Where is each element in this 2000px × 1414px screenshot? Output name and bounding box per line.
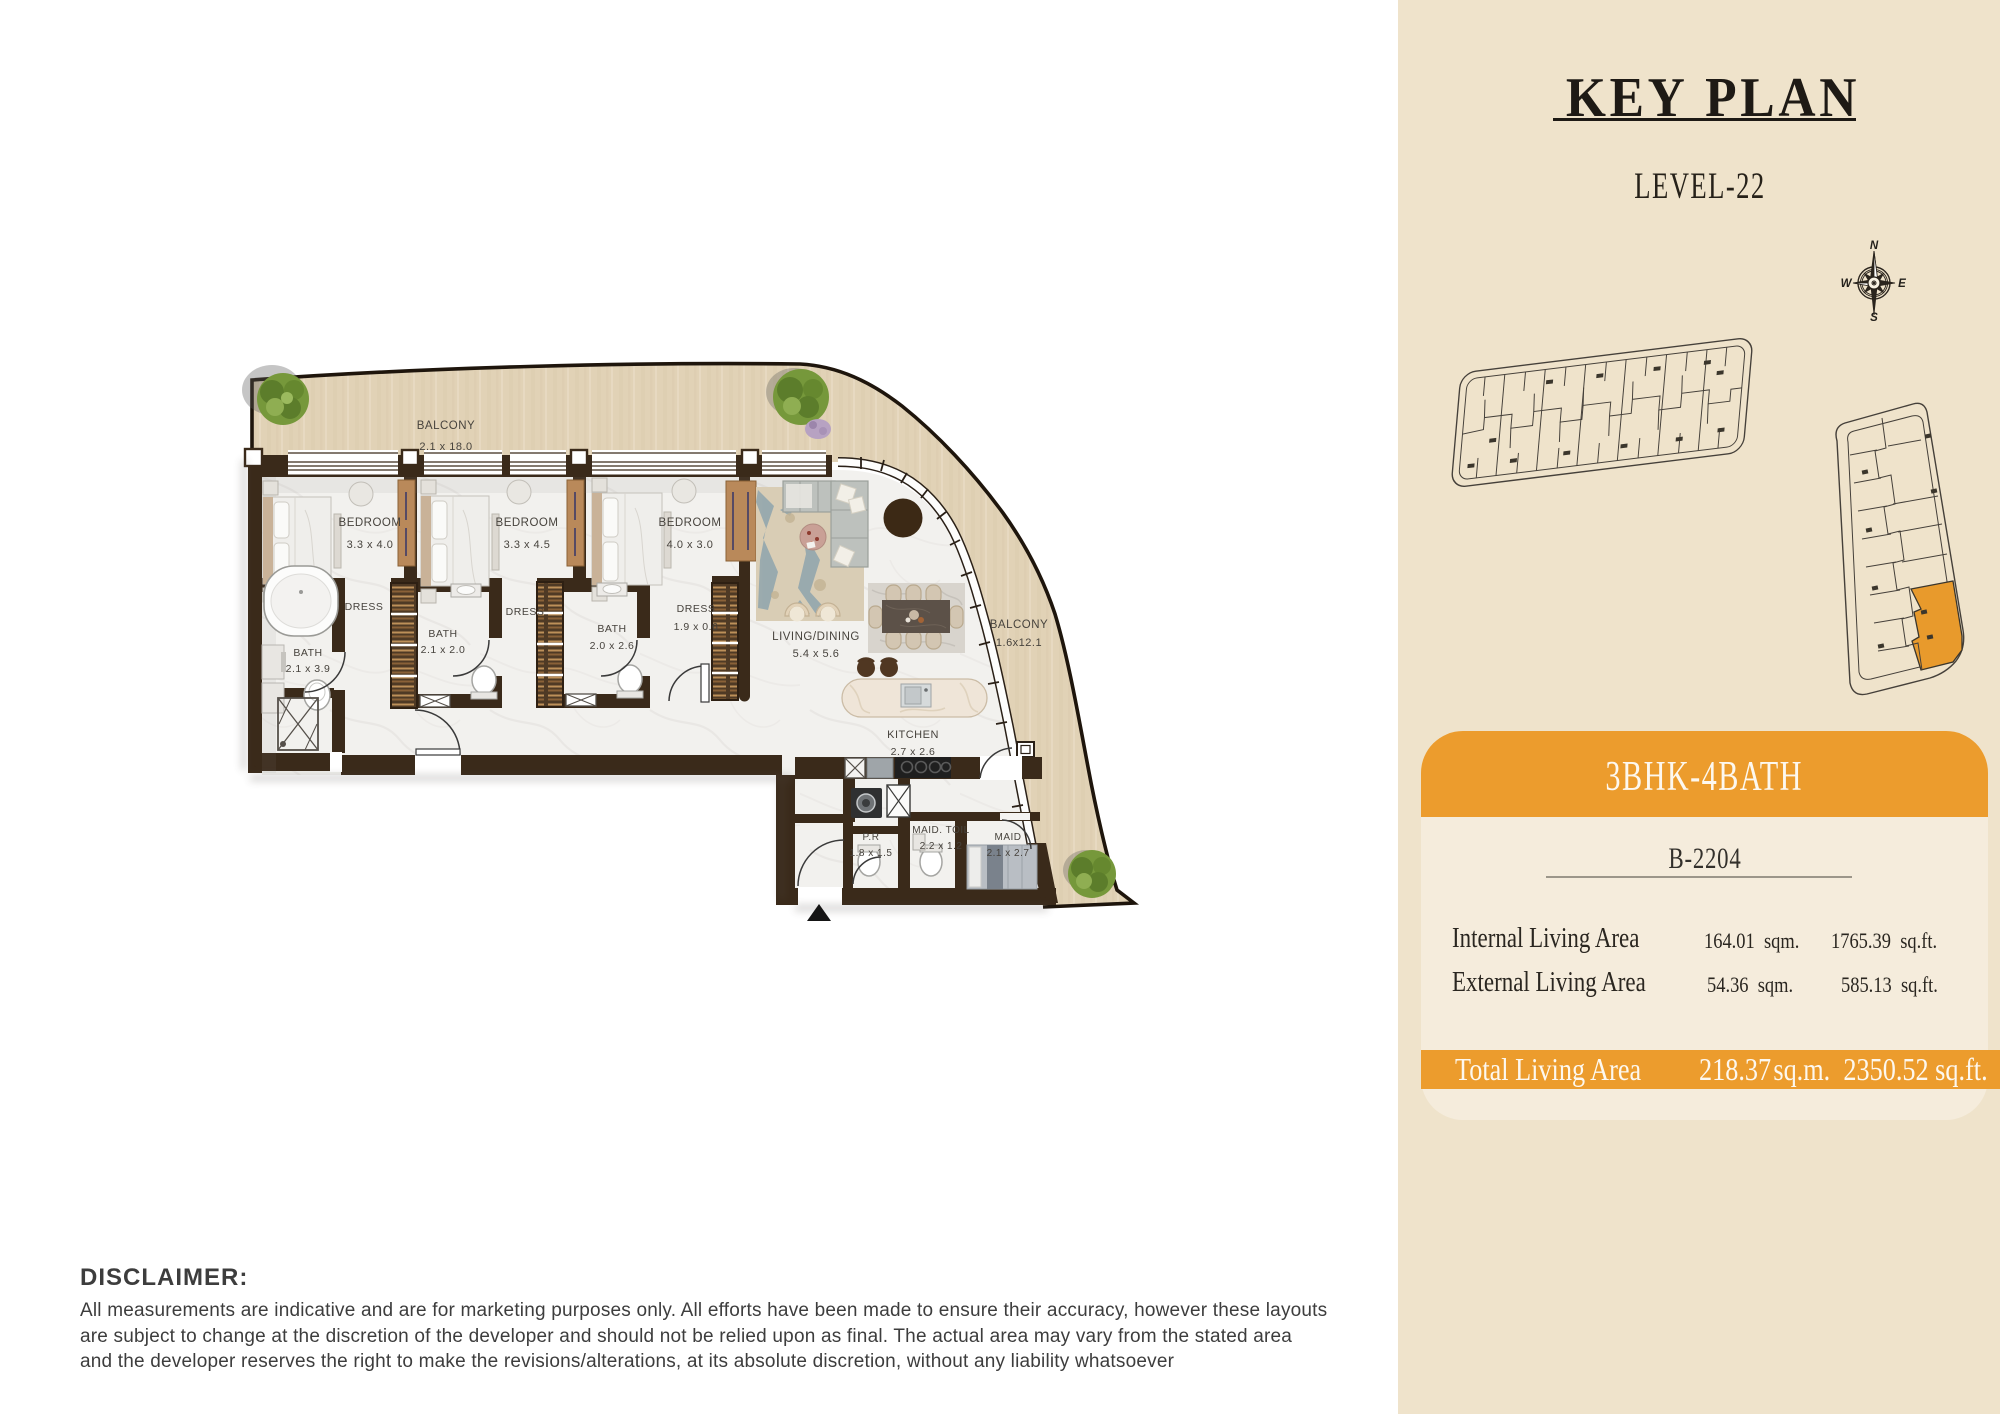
svg-text:MAID. TOIL: MAID. TOIL: [912, 825, 969, 836]
svg-text:LIVING/DINING: LIVING/DINING: [772, 631, 860, 643]
svg-text:5.4 x 5.6: 5.4 x 5.6: [793, 648, 840, 660]
svg-text:1.6x12.1: 1.6x12.1: [996, 637, 1042, 649]
svg-text:BATH: BATH: [428, 628, 457, 640]
svg-text:KITCHEN: KITCHEN: [887, 729, 939, 741]
svg-text:2.1 x 18.0: 2.1 x 18.0: [419, 441, 472, 453]
svg-text:BALCONY: BALCONY: [990, 619, 1048, 631]
svg-text:P.R: P.R: [863, 832, 880, 843]
svg-text:BATH: BATH: [293, 647, 322, 659]
svg-text:MAID: MAID: [995, 832, 1022, 843]
svg-text:BEDROOM: BEDROOM: [496, 517, 559, 529]
svg-text:2.2 x 1.2: 2.2 x 1.2: [920, 841, 963, 852]
svg-text:S: S: [1870, 312, 1878, 324]
svg-text:4.0 x 3.0: 4.0 x 3.0: [667, 539, 714, 551]
svg-text:1.9 x 0.6: 1.9 x 0.6: [674, 621, 719, 633]
svg-text:BEDROOM: BEDROOM: [659, 517, 722, 529]
svg-text:2.7 x 2.6: 2.7 x 2.6: [891, 746, 936, 758]
svg-text:2.1 x 3.9: 2.1 x 3.9: [286, 663, 331, 675]
svg-text:N: N: [1870, 240, 1879, 252]
svg-text:3.3 x 4.5: 3.3 x 4.5: [504, 539, 551, 551]
svg-text:BALCONY: BALCONY: [417, 420, 475, 432]
svg-text:2.0 x 2.6: 2.0 x 2.6: [590, 640, 635, 652]
svg-text:W: W: [1841, 278, 1853, 290]
svg-text:E: E: [1898, 278, 1906, 290]
svg-text:2.1 x 2.0: 2.1 x 2.0: [421, 644, 466, 656]
svg-text:2.1 x 2.7: 2.1 x 2.7: [987, 848, 1030, 859]
svg-text:3.3 x 4.0: 3.3 x 4.0: [347, 539, 394, 551]
svg-text:1.8 x 1.5: 1.8 x 1.5: [850, 848, 893, 859]
svg-text:BEDROOM: BEDROOM: [339, 517, 402, 529]
svg-text:DRESS: DRESS: [506, 606, 545, 618]
svg-text:DRESS: DRESS: [345, 601, 384, 613]
svg-text:BATH: BATH: [597, 623, 626, 635]
svg-text:DRESS: DRESS: [677, 603, 716, 615]
